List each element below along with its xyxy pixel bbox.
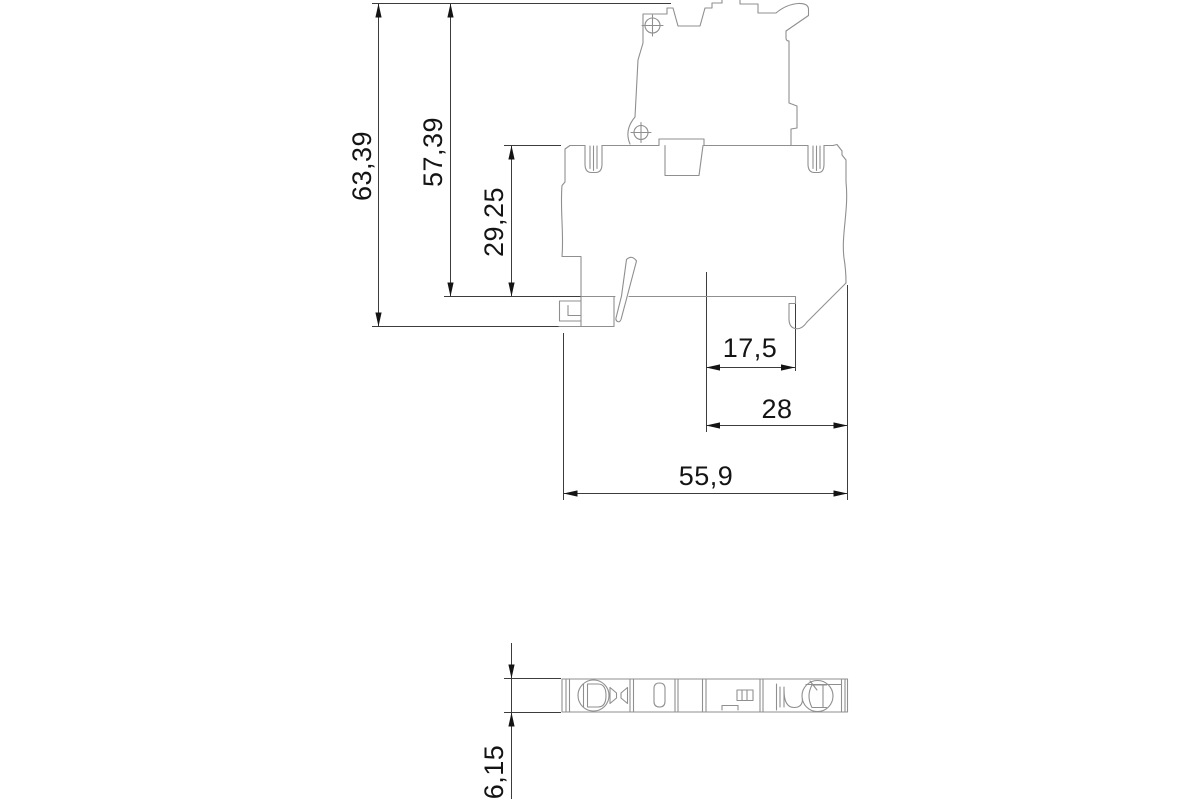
din-rail-hook [560,301,582,321]
dimension-label-total-height: 63,39 [347,131,377,201]
arrowhead-icon [834,490,848,496]
side-view-outline [559,0,847,329]
dimension-label-mid-width: 28 [761,394,792,424]
hinge-cross-icon [631,123,651,143]
dimension-label-upper-height: 57,39 [418,117,448,187]
body-center-tab [659,139,704,176]
body-bottom-edge [559,297,795,327]
carrier-release-beak [776,3,809,31]
arrowhead-icon [564,490,578,496]
dimension-label-total-width: 55,9 [679,461,734,491]
dimension-label-inner-width: 17,5 [723,333,778,363]
screw-cross-icon [642,15,663,36]
carrier-right-edge [786,31,797,146]
strip-dividers-1 [630,679,634,712]
clamp-bowtie-icon [610,688,628,704]
strip-left-end-bars [566,679,570,712]
strip-notch [722,706,738,711]
carrier-top-profile [667,3,722,26]
arrowhead-icon [447,4,453,18]
body-right-chamfer [807,283,846,322]
screw-slot-icon [809,685,827,708]
body-left-edge [561,146,581,327]
carrier-left-edge [628,14,667,144]
arrowhead-icon [508,283,514,297]
arrowhead-icon [508,665,514,679]
screw-head-icon [578,680,609,711]
screw-slot-icon [584,684,607,707]
arrowhead-icon [375,313,381,327]
strip-right-end-bars [842,679,846,712]
arrowhead-icon [375,4,381,18]
body-right-foot [789,297,807,329]
arrowhead-icon [447,283,453,297]
carrier-top-tab [722,0,776,13]
technical-drawing-canvas: 63,39 57,39 29,25 17,5 28 55,9 6,15 [0,0,1200,800]
bottom-view-outline [562,679,848,712]
strip-dividers-3 [703,679,707,712]
strip-clamp-hook [784,690,803,708]
arrowhead-icon [706,364,720,370]
release-lever [616,257,637,321]
strip-slot [654,683,665,707]
strip-dividers-4 [760,679,763,712]
body-right-edge [833,145,847,284]
dimension-label-profile-thickness: 6,15 [479,745,509,800]
arrowhead-icon [508,146,514,160]
arrowhead-icon [834,422,848,428]
body-left-contact-pin [585,146,602,173]
dimension-drawing-svg: 63,39 57,39 29,25 17,5 28 55,9 6,15 [0,0,1200,800]
strip-dividers-2 [675,679,678,712]
strip-outer-rect [562,679,848,712]
arrowhead-icon [781,364,795,370]
arrowhead-icon [706,422,720,428]
body-right-contact-pin [808,146,824,173]
strip-marker-window [737,690,753,701]
dimension-arrowheads [375,4,847,727]
strip-clamp-bars [777,684,785,710]
arrowhead-icon [508,713,514,727]
dimension-label-body-height: 29,25 [479,187,509,257]
